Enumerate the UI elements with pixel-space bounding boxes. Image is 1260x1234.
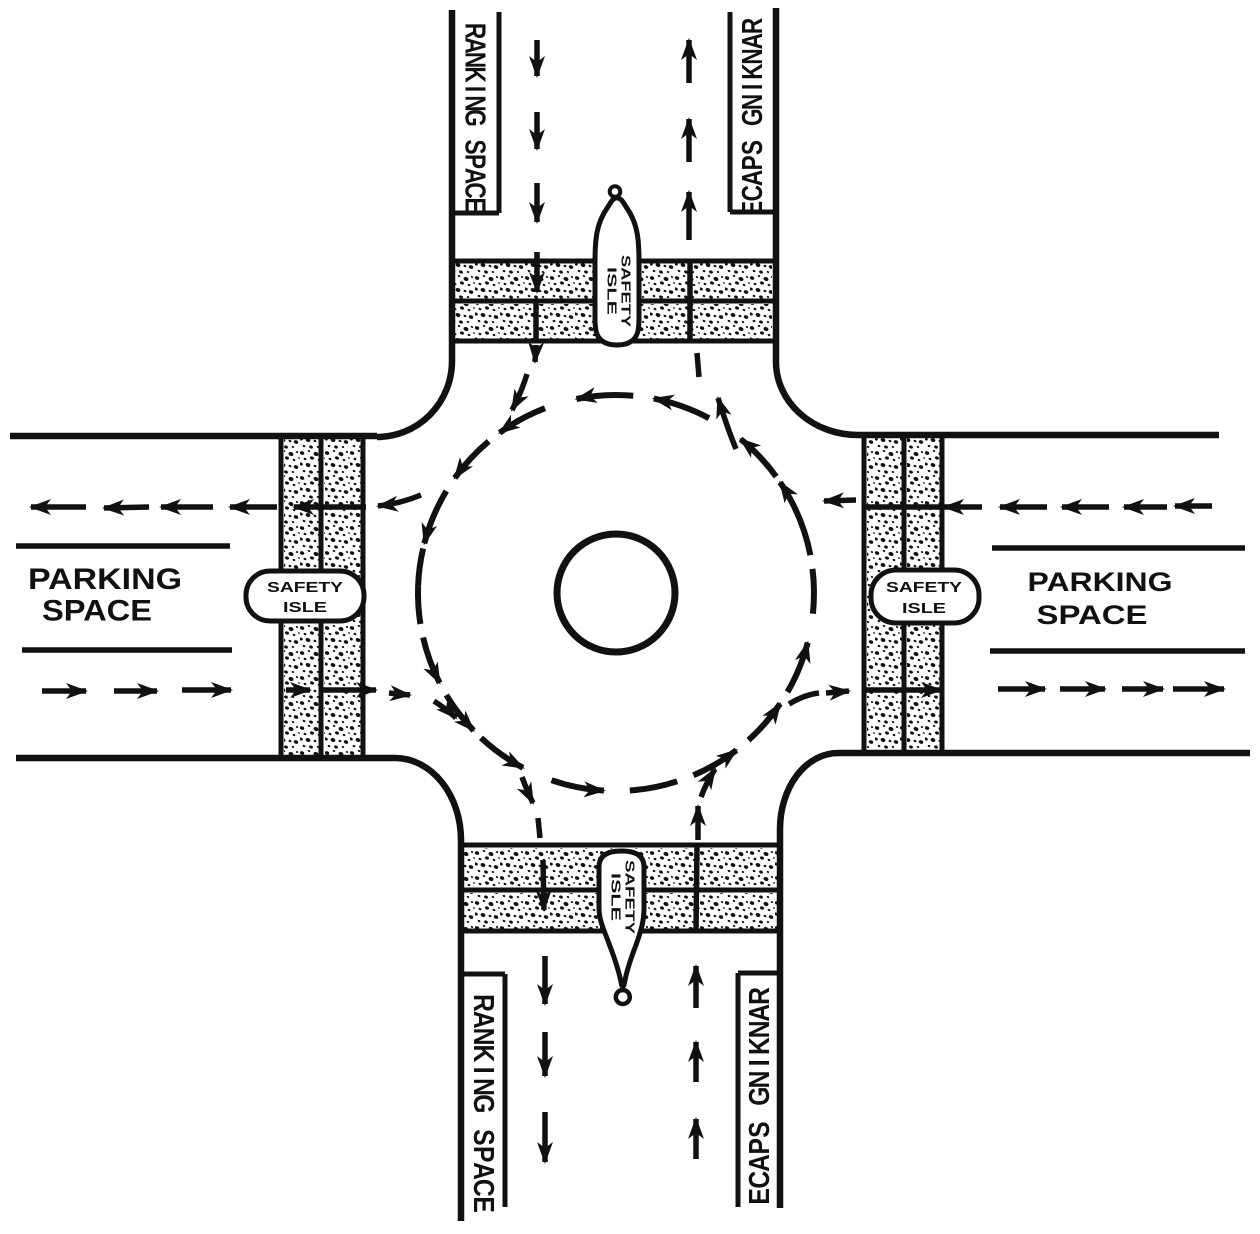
svg-text:N: N — [743, 1071, 775, 1089]
svg-text:A: A — [743, 1004, 775, 1022]
svg-text:K: K — [735, 63, 768, 80]
svg-text:G: G — [743, 1087, 775, 1106]
svg-text:I: I — [743, 1059, 775, 1066]
svg-text:S: S — [467, 1129, 499, 1145]
svg-text:K: K — [459, 66, 492, 83]
svg-text:I: I — [467, 1067, 499, 1074]
svg-text:SAFETY: SAFETY — [619, 255, 633, 328]
svg-text:G: G — [735, 108, 768, 126]
svg-text:A: A — [743, 1154, 775, 1172]
svg-text:SPACE: SPACE — [1037, 600, 1148, 630]
svg-text:N: N — [735, 48, 768, 64]
svg-text:ISLE: ISLE — [609, 873, 623, 921]
svg-text:E: E — [743, 1188, 775, 1204]
svg-text:A: A — [735, 33, 768, 50]
svg-text:SAFETY: SAFETY — [886, 579, 962, 596]
svg-text:E: E — [459, 197, 492, 212]
svg-text:S: S — [459, 139, 492, 154]
svg-text:N: N — [467, 1028, 499, 1046]
svg-text:I: I — [735, 84, 768, 90]
svg-text:S: S — [735, 140, 768, 155]
svg-text:E: E — [467, 1196, 499, 1212]
svg-text:S: S — [743, 1121, 775, 1137]
svg-text:PARKING: PARKING — [28, 563, 182, 596]
svg-text:ISLE: ISLE — [902, 600, 946, 617]
svg-text:A: A — [467, 1011, 499, 1029]
svg-text:R: R — [467, 994, 499, 1012]
svg-text:G: G — [467, 1094, 499, 1113]
svg-text:P: P — [735, 155, 768, 170]
svg-text:P: P — [459, 154, 492, 169]
svg-text:C: C — [743, 1171, 775, 1189]
svg-text:C: C — [459, 182, 492, 199]
svg-text:PARKING: PARKING — [1028, 567, 1173, 597]
svg-text:SAFETY: SAFETY — [267, 579, 343, 596]
svg-text:K: K — [467, 1044, 499, 1062]
svg-text:N: N — [743, 1020, 775, 1038]
svg-text:R: R — [743, 987, 775, 1005]
svg-text:A: A — [467, 1162, 499, 1180]
svg-text:N: N — [467, 1078, 499, 1096]
svg-text:A: A — [735, 170, 768, 187]
svg-text:N: N — [735, 94, 768, 110]
svg-text:ISLE: ISLE — [283, 599, 327, 616]
svg-text:K: K — [743, 1037, 775, 1055]
svg-text:SPACE: SPACE — [42, 595, 152, 628]
svg-text:ISLE: ISLE — [605, 267, 619, 315]
svg-text:G: G — [459, 109, 492, 127]
svg-text:SAFETY: SAFETY — [623, 860, 637, 935]
svg-text:I: I — [459, 86, 492, 92]
svg-text:R: R — [735, 18, 768, 35]
svg-text:C: C — [735, 185, 768, 202]
svg-text:P: P — [743, 1138, 775, 1154]
svg-text:E: E — [735, 201, 768, 216]
svg-text:C: C — [467, 1179, 499, 1197]
svg-text:P: P — [467, 1146, 499, 1162]
